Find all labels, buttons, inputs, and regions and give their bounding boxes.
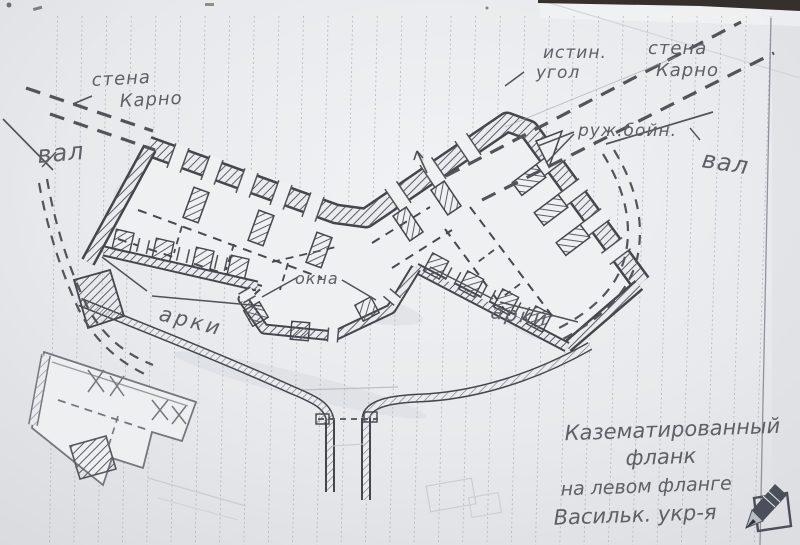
label-true-angle-line1: истин. xyxy=(543,43,607,63)
label-true-angle-line2: угол xyxy=(535,63,580,83)
caption-line2: фланк xyxy=(625,444,697,470)
label-carno-left-line2: Карно xyxy=(119,88,183,112)
sketch-photo: стена Карно истин. угол стена Карно руж.… xyxy=(0,0,800,545)
label-carno-right-line1: стена xyxy=(648,38,707,59)
page-edge-shade xyxy=(772,0,800,545)
label-carno-right-line2: Карно xyxy=(656,60,719,81)
photographed-pencil-plan: стена Карно истин. угол стена Карно руж.… xyxy=(0,0,800,545)
label-windows: окна xyxy=(295,269,339,288)
label-carno-left-line1: стена xyxy=(91,67,151,91)
label-val-left: вал xyxy=(36,137,85,169)
label-rifle-loopholes: руж.бойн. xyxy=(577,121,677,141)
